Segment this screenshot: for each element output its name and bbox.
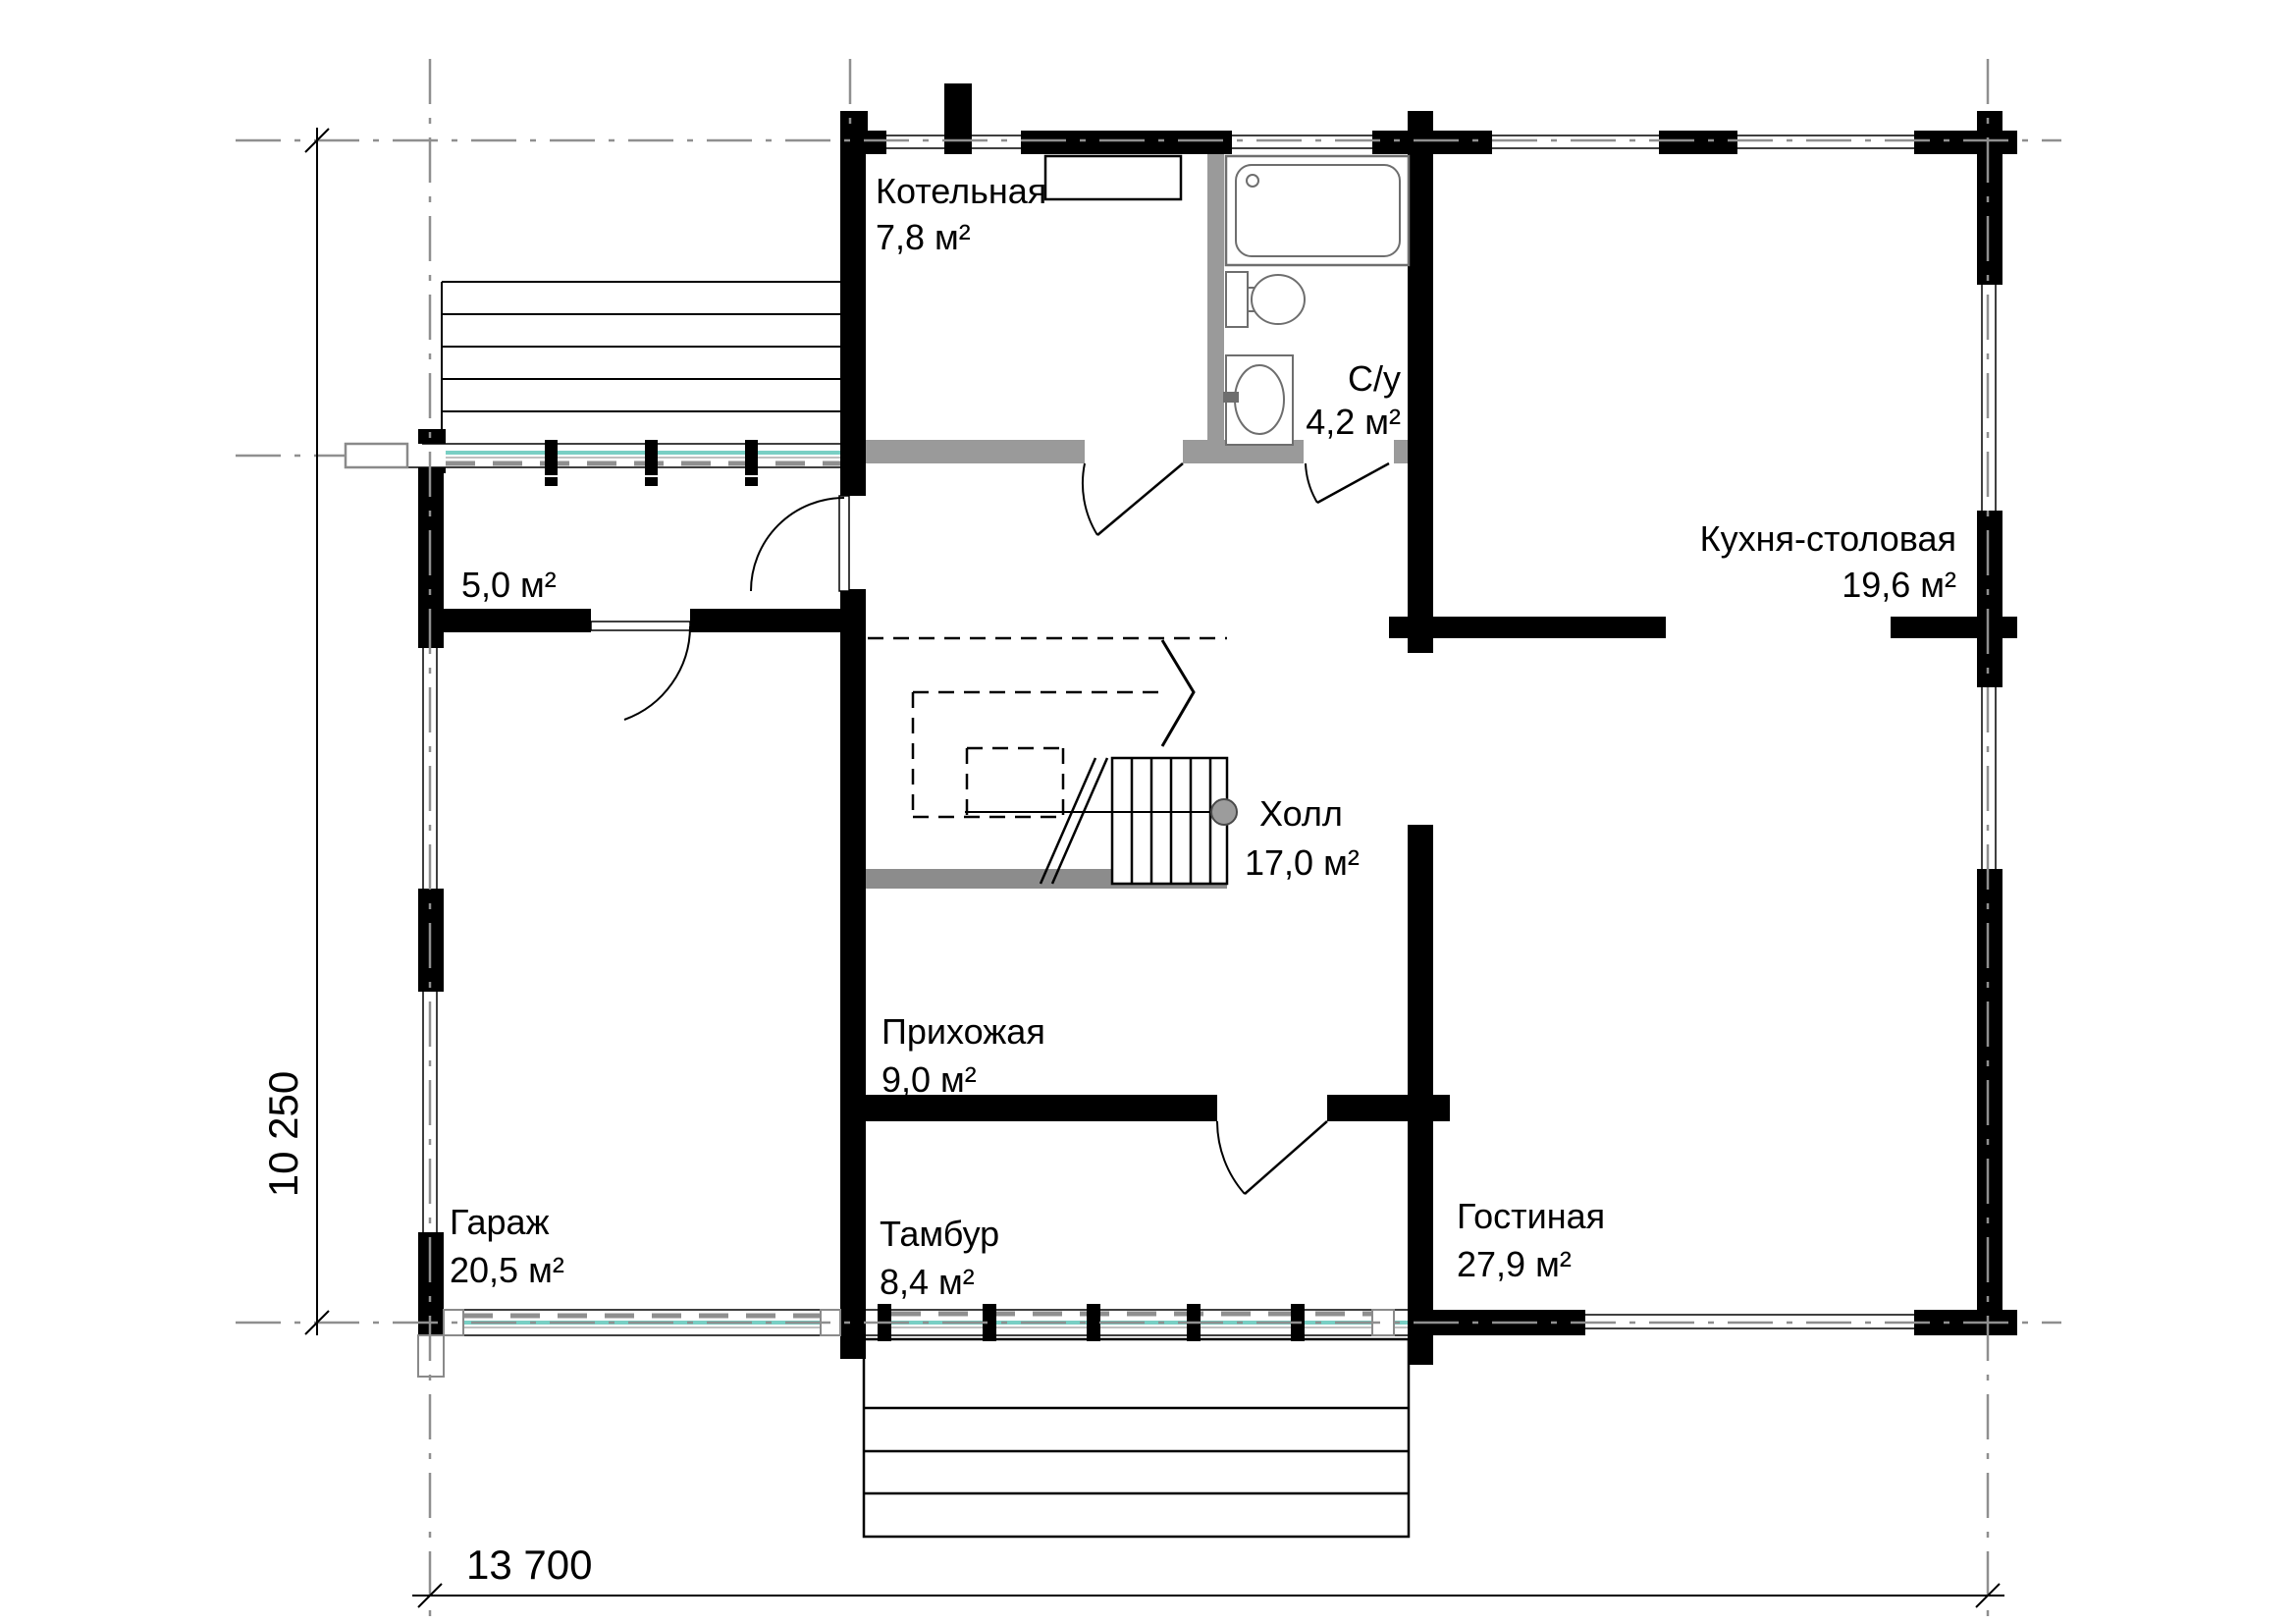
room-area-living: 27,9 м² <box>1457 1244 1572 1284</box>
toilet <box>1226 272 1305 327</box>
room-name-living: Гостиная <box>1457 1196 1605 1236</box>
room-area-kitchen: 19,6 м² <box>1842 565 1956 605</box>
room-labels: Котельная 7,8 м² С/у 4,2 м² Кухня-столов… <box>450 171 1956 1302</box>
door-boiler <box>1083 463 1183 535</box>
stairs-break-line <box>1041 758 1107 884</box>
stairs-newel-post <box>1211 799 1237 825</box>
terrace-deck <box>442 282 840 444</box>
room-name-entry-hall: Прихожая <box>881 1011 1045 1052</box>
room-area-garage: 20,5 м² <box>450 1250 564 1290</box>
window-boiler-left <box>886 131 944 154</box>
stairs-up-arrow <box>1162 640 1194 746</box>
dim-vertical-text: 10 250 <box>260 1071 306 1197</box>
porch-steps <box>864 1339 1409 1537</box>
door-storage-hall <box>751 496 849 591</box>
stairs <box>868 638 1237 884</box>
window-kitchen-2 <box>1737 131 1914 154</box>
room-name-bathroom: С/у <box>1348 358 1401 399</box>
door-bathroom <box>1306 463 1389 503</box>
room-area-storage: 5,0 м² <box>461 565 557 605</box>
floor-plan-page: 10 250 13 700 Котельная 7,8 м² С/у 4,2 м… <box>0 0 2296 1624</box>
window-living-right <box>1977 687 2002 869</box>
room-name-boiler: Котельная <box>876 171 1046 211</box>
window-kitchen-right <box>1977 285 2002 511</box>
floor-plan-drawing: 10 250 13 700 Котельная 7,8 м² С/у 4,2 м… <box>0 0 2296 1624</box>
bathtub <box>1226 156 1409 265</box>
room-name-kitchen: Кухня-столовая <box>1700 518 1956 559</box>
window-boiler-right <box>972 131 1021 154</box>
window-bathroom <box>1232 131 1372 154</box>
room-area-vestibule: 8,4 м² <box>880 1262 975 1302</box>
room-area-bathroom: 4,2 м² <box>1306 402 1401 442</box>
sink <box>1224 355 1293 445</box>
door-storage-garage <box>591 622 690 720</box>
room-name-hall: Холл <box>1259 793 1343 834</box>
room-name-garage: Гараж <box>450 1202 550 1242</box>
room-area-entry-hall: 9,0 м² <box>881 1059 977 1100</box>
window-kitchen-1 <box>1492 131 1659 154</box>
dim-horizontal-text: 13 700 <box>466 1542 592 1588</box>
room-area-hall: 17,0 м² <box>1245 842 1360 883</box>
room-area-boiler: 7,8 м² <box>876 217 971 257</box>
door-vestibule <box>1217 1121 1327 1194</box>
room-name-vestibule: Тамбур <box>880 1214 999 1254</box>
boiler-unit <box>1045 156 1181 199</box>
